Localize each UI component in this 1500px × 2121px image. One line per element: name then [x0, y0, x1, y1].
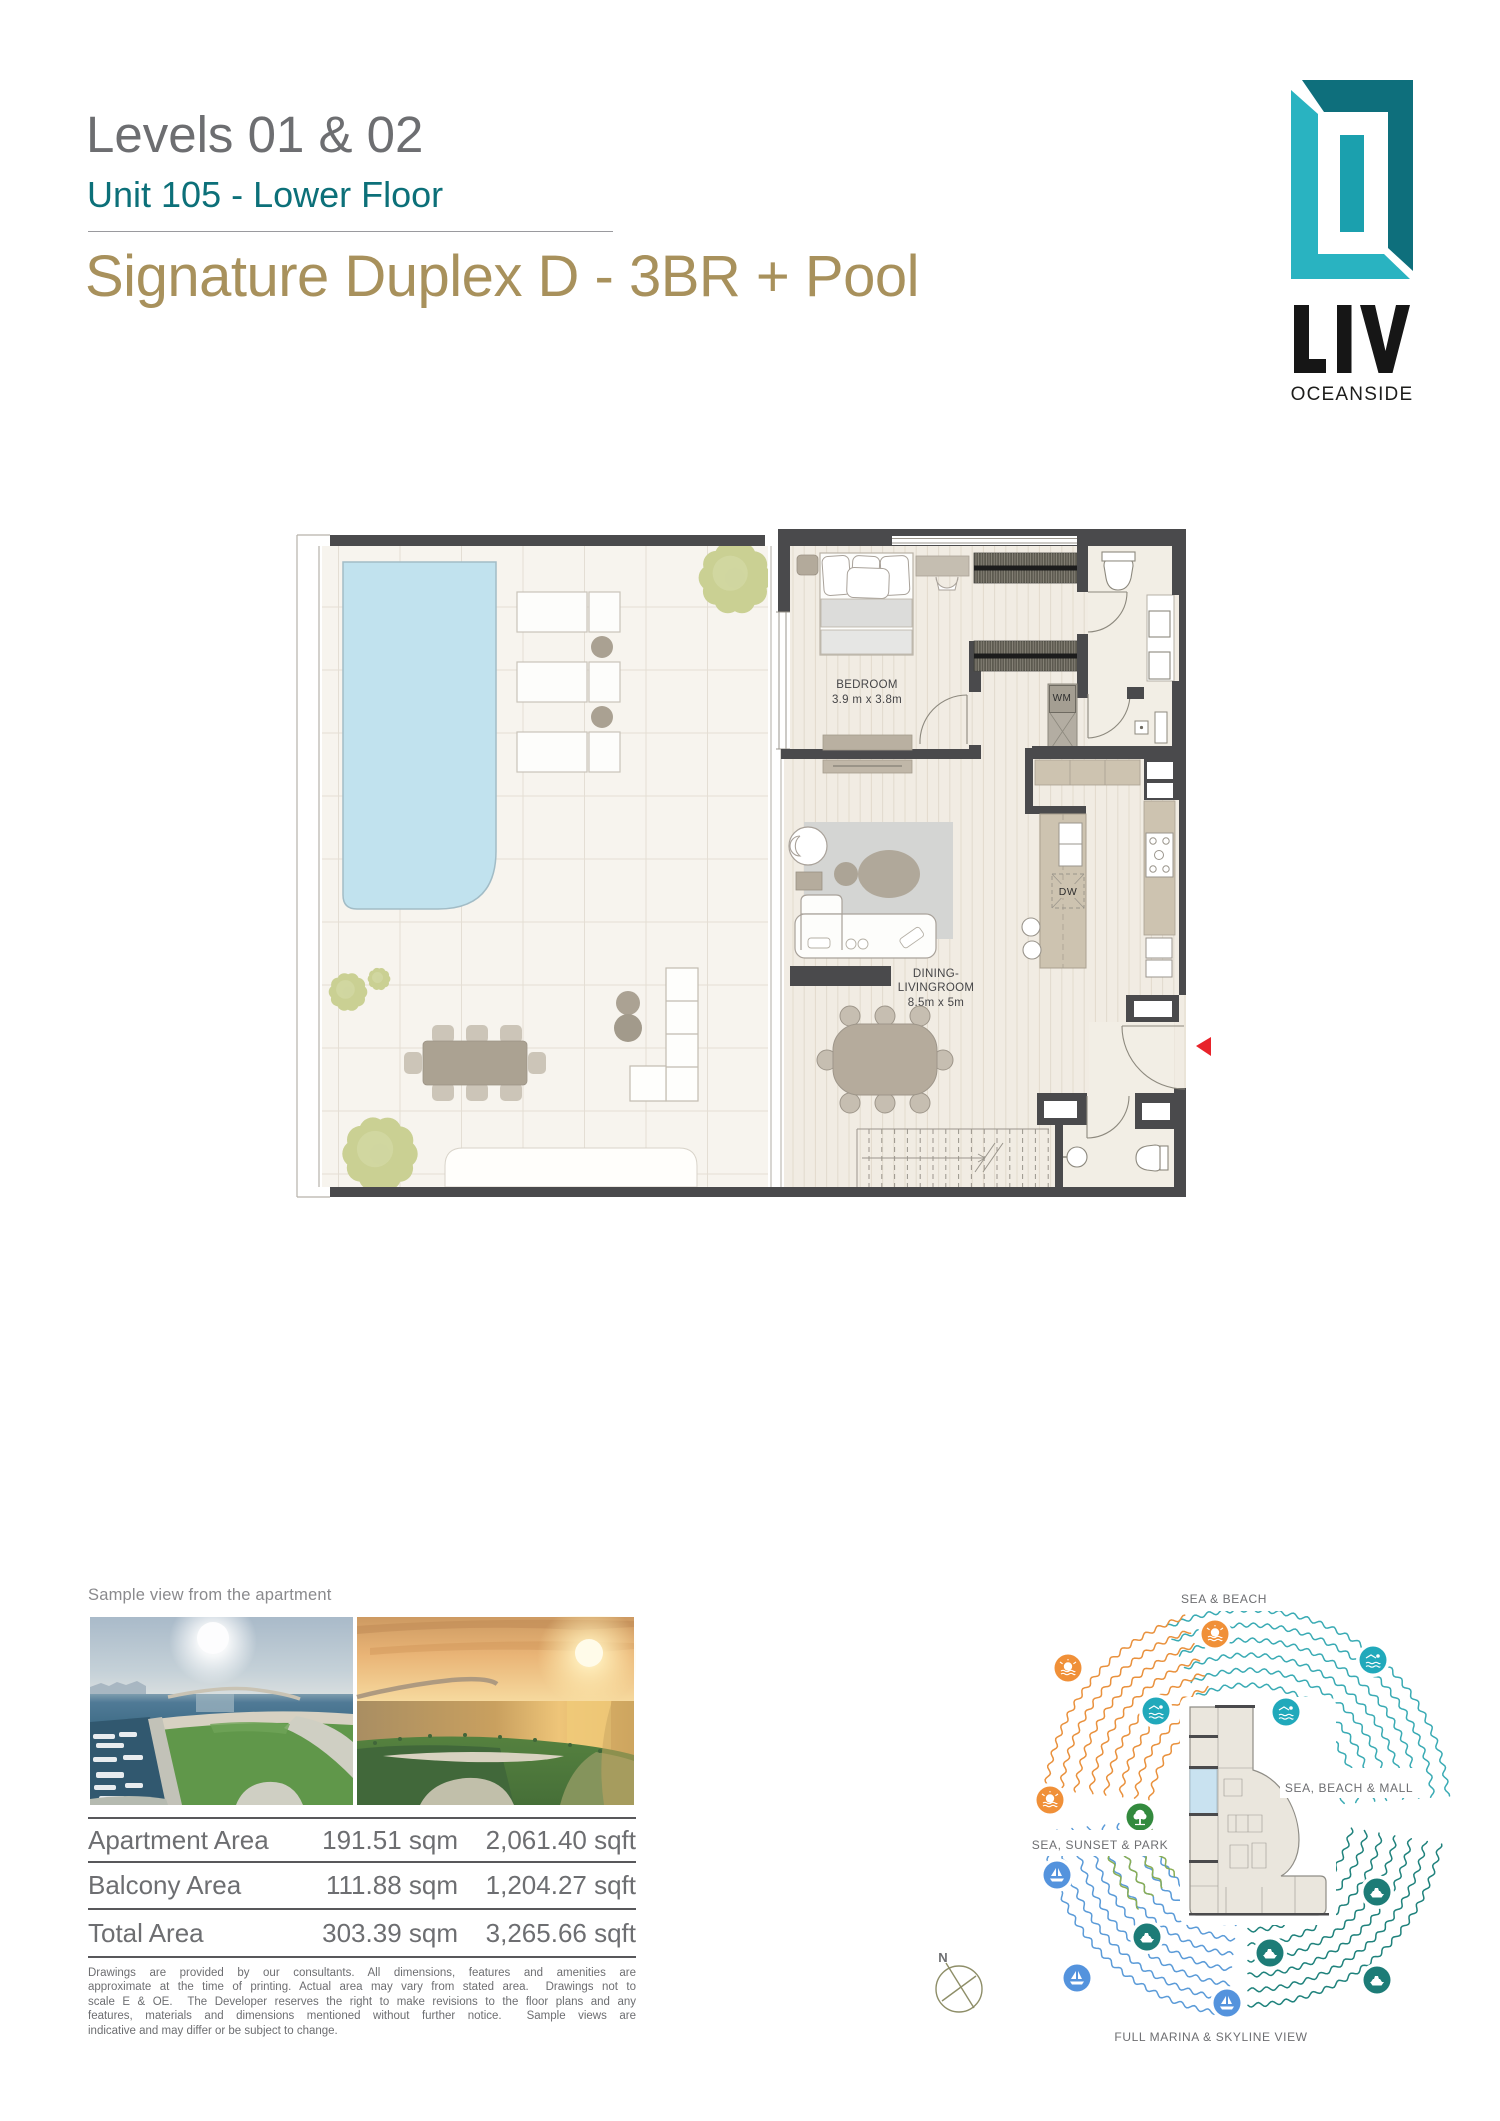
svg-text:BEDROOM: BEDROOM [836, 679, 898, 691]
svg-text:DW: DW [1059, 886, 1078, 898]
svg-text:OCEANSIDE: OCEANSIDE [1291, 384, 1414, 405]
svg-text:DINING-: DINING- [913, 968, 959, 980]
svg-text:SEA & BEACH: SEA & BEACH [1181, 1592, 1267, 1606]
svg-text:SEA, BEACH & MALL: SEA, BEACH & MALL [1285, 1781, 1413, 1795]
svg-text:LIVINGROOM: LIVINGROOM [898, 982, 974, 994]
svg-text:3.9 m x 3.8m: 3.9 m x 3.8m [832, 694, 902, 706]
svg-text:FULL MARINA & SKYLINE VIEW: FULL MARINA & SKYLINE VIEW [1114, 2030, 1307, 2044]
svg-text:N: N [938, 1950, 947, 1965]
svg-text:WM: WM [1053, 693, 1072, 704]
svg-text:SEA, SUNSET & PARK: SEA, SUNSET & PARK [1032, 1838, 1168, 1852]
